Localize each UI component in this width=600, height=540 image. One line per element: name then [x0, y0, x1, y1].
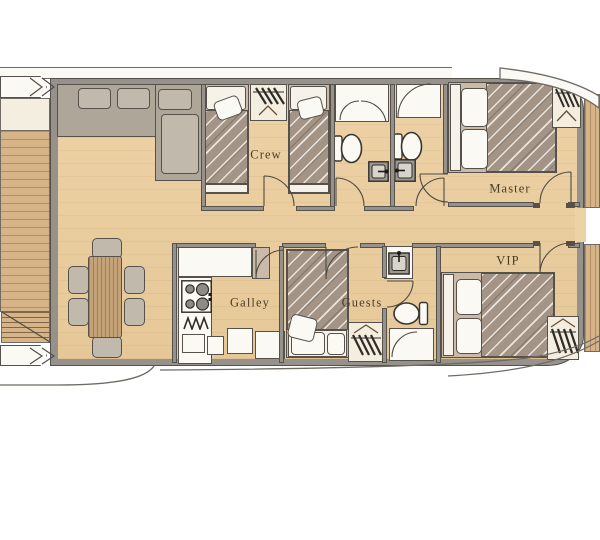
galley-counter-top	[178, 247, 252, 277]
hanger-rack-icon	[251, 85, 286, 120]
hanger-rack-icon	[349, 323, 383, 361]
wall	[382, 308, 387, 363]
room-label-vip: VIP	[496, 254, 519, 269]
galley-cabinet	[182, 334, 205, 353]
door-jamb	[533, 241, 540, 246]
dining-chair	[124, 298, 145, 326]
wall	[330, 84, 335, 210]
galley-vent-icon	[183, 316, 210, 330]
wall	[172, 243, 256, 248]
crew-wardrobe	[250, 84, 287, 121]
master-mattress-edge	[450, 84, 461, 171]
dining-chair	[68, 266, 89, 294]
master-blanket	[486, 83, 556, 172]
room-label-master: Master	[489, 182, 530, 197]
deck-bench-bottom	[0, 345, 47, 366]
dining-chair	[124, 266, 145, 294]
hanger-rack-icon	[553, 87, 580, 127]
crew-bed-foot	[204, 184, 248, 193]
wall	[382, 246, 387, 278]
hull-line-aft-lower	[0, 366, 154, 385]
dining-table	[88, 256, 122, 338]
pillow	[456, 279, 482, 315]
galley-fridge	[252, 247, 270, 279]
deck-bench-top	[0, 76, 47, 98]
wall	[412, 243, 534, 248]
sofa-cushion	[158, 89, 192, 110]
chaise-cushion	[161, 114, 199, 174]
crew-blanket	[204, 110, 248, 184]
wall	[436, 246, 441, 363]
pillow	[461, 129, 488, 169]
door-jamb	[533, 203, 540, 208]
dining-chair	[92, 336, 122, 358]
wall	[296, 206, 335, 211]
vip-wardrobe	[547, 316, 579, 360]
galley-cabinet	[207, 336, 224, 355]
wall	[201, 206, 264, 211]
yacht-floor-plan: Crew Master VIP Galley Guests	[0, 0, 600, 540]
wall	[279, 246, 284, 363]
sink-icon	[394, 159, 416, 182]
room-label-crew: Crew	[250, 148, 281, 163]
door-jamb	[566, 241, 575, 246]
door-jamb	[566, 203, 575, 208]
shower-port	[335, 84, 389, 122]
vip-mattress-edge	[443, 274, 454, 356]
master-wardrobe	[552, 86, 581, 128]
room-label-guests: Guests	[342, 296, 383, 311]
sink-icon	[368, 161, 389, 182]
hanger-rack-icon	[548, 317, 578, 359]
stairs-icon	[1, 311, 50, 343]
side-entry-opening	[575, 208, 586, 242]
wall	[448, 202, 534, 207]
galley-island	[227, 328, 253, 354]
aft-walkway	[0, 98, 50, 131]
vip-blanket	[481, 273, 554, 357]
wall	[364, 206, 414, 211]
dining-chair	[68, 298, 89, 326]
guest-shower	[389, 328, 434, 361]
wall	[172, 243, 177, 363]
guests-wardrobe	[348, 322, 384, 362]
bow-side-deck	[584, 244, 600, 352]
toilet-icon	[333, 129, 363, 168]
aft-teak-deck	[0, 130, 50, 312]
sink-icon	[388, 250, 410, 275]
wall	[282, 243, 326, 248]
stove-icon	[181, 280, 212, 313]
guests-bed-foot	[327, 333, 345, 355]
wall	[443, 84, 448, 174]
pillow	[461, 88, 488, 127]
crew-blanket	[289, 110, 329, 184]
sofa-cushion	[78, 88, 111, 109]
wall	[201, 84, 206, 210]
room-label-galley: Galley	[230, 296, 270, 311]
shower-stbd	[396, 84, 441, 118]
crew-bed-foot	[289, 184, 329, 193]
sofa-cushion	[117, 88, 150, 109]
toilet-icon	[393, 300, 429, 327]
pillow	[456, 318, 482, 354]
wall	[390, 84, 395, 210]
bow-side-deck	[584, 94, 600, 208]
